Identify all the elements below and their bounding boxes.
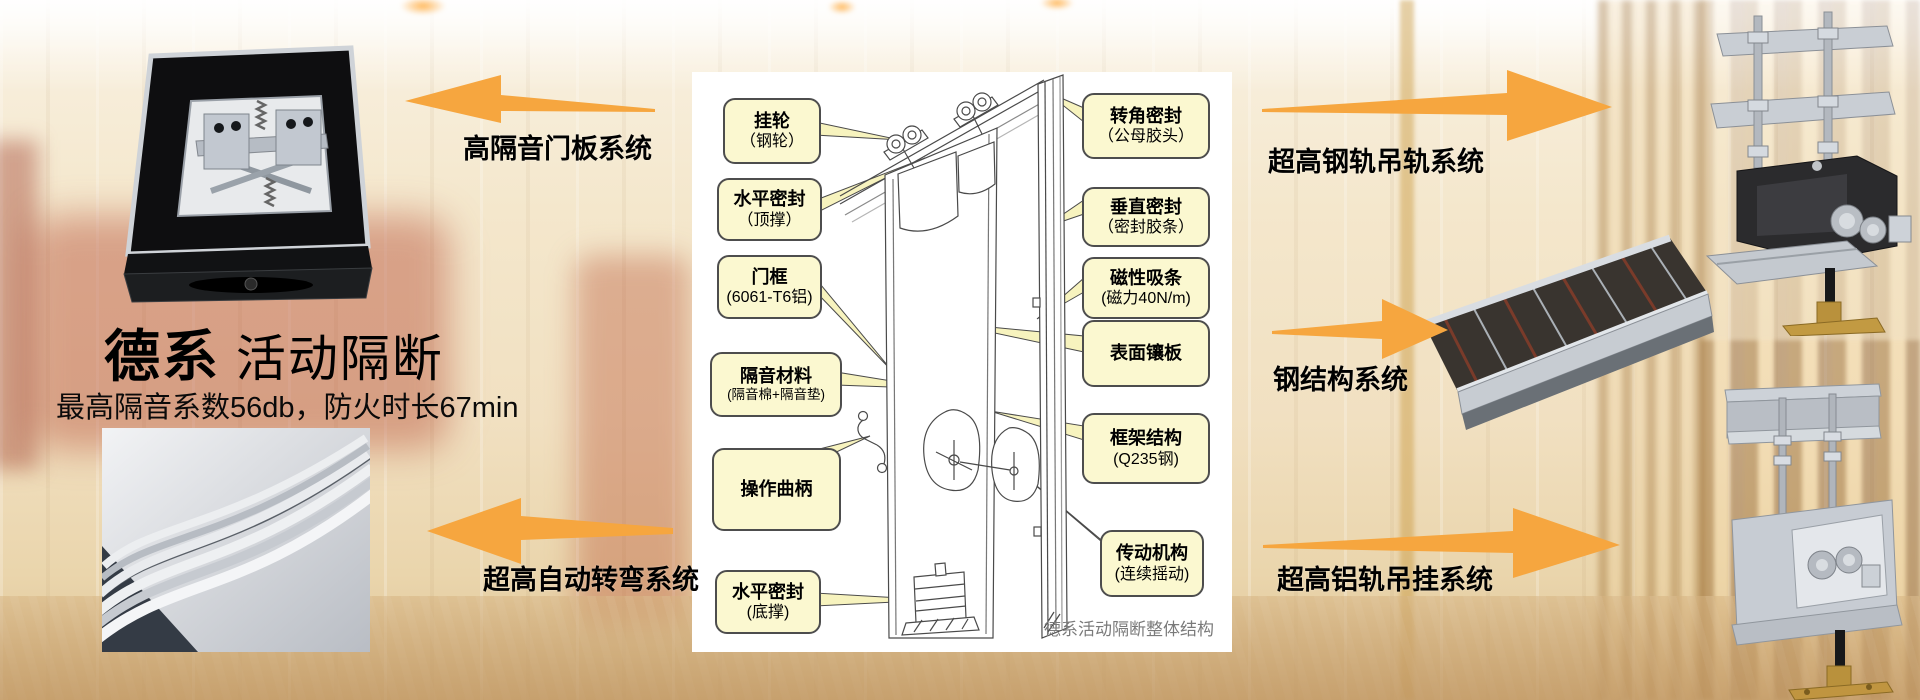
diagram-caption: 德系活动隔断整体结构 [1028, 615, 1230, 640]
left-arrow-icon [403, 73, 655, 125]
ceiling-light [828, 0, 856, 14]
callout-line: 垂直密封 [1110, 196, 1182, 219]
system-label-door-panel: 高隔音门板系统 [463, 127, 652, 166]
callout-line: 门框 [752, 266, 788, 289]
system-label-steel-structure: 钢结构系统 [1273, 358, 1408, 397]
callout-line: 隔音材料 [740, 365, 812, 388]
red-panel-blur [0, 140, 38, 470]
right-arrow-icon [1272, 297, 1450, 360]
callout-line: (隔音棉+隔音垫) [727, 387, 825, 404]
product-specs: 最高隔音系数56db，防火时长67min [56, 384, 519, 426]
callout-line: (磁力40N/m) [1101, 289, 1191, 309]
callout-operating-crank: 操作曲柄 [712, 448, 841, 531]
callout-line: 挂轮 [754, 110, 790, 133]
callout-hanging-wheel: 挂轮 （钢轮） [723, 98, 821, 164]
callout-line: （顶撑） [737, 211, 801, 231]
callout-line: （公母胶头） [1098, 127, 1194, 147]
callout-line: 表面镶板 [1110, 342, 1182, 365]
callout-door-frame: 门框 (6061-T6铝) [717, 255, 822, 319]
partition-drawing [840, 75, 1067, 638]
door-panel-mechanism-photo [116, 6, 390, 306]
product-title-bold: 德系 [104, 325, 220, 388]
callout-line: (6061-T6铝) [726, 288, 812, 308]
callout-line: 传动机构 [1116, 542, 1188, 565]
aluminum-rail-hanger-art [1697, 380, 1919, 700]
callout-horizontal-seal-top: 水平密封 （顶撑） [717, 178, 822, 241]
callout-line: （钢轮） [740, 132, 804, 152]
left-arrow-icon [425, 496, 673, 566]
aluminum-rail-hanger-photo [1697, 380, 1919, 700]
system-label-aluminum-rail: 超高铝轨吊挂系统 [1277, 558, 1493, 597]
partition-marketing-banner: 高隔音门板系统 超高自动转弯系统 超高钢轨吊轨系统 钢结构系统 超高铝轨吊挂系统… [0, 0, 1920, 700]
callout-magnetic-strip: 磁性吸条 (磁力40N/m) [1082, 257, 1210, 319]
callout-line: 操作曲柄 [741, 478, 813, 501]
callout-line: （密封胶条） [1098, 218, 1194, 238]
product-title-regular: 活动隔断 [220, 331, 444, 387]
system-label-auto-turning: 超高自动转弯系统 [483, 558, 699, 597]
steel-structure-photo [1418, 232, 1718, 460]
curved-track-art [102, 428, 370, 652]
callout-line: 框架结构 [1110, 427, 1182, 450]
callout-line: 磁性吸条 [1110, 267, 1182, 290]
callout-horizontal-seal-bottom: 水平密封 (底撑) [715, 570, 821, 634]
callout-surface-panel: 表面镶板 [1082, 320, 1210, 387]
callout-line: (Q235钢) [1113, 450, 1179, 470]
steel-structure-art [1418, 232, 1718, 460]
callout-line: (连续摇动) [1115, 565, 1190, 585]
callout-transmission: 传动机构 (连续摇动) [1100, 530, 1204, 597]
callout-line: (底撑) [747, 603, 790, 623]
callout-line: 转角密封 [1110, 105, 1182, 128]
right-arrow-icon [1262, 67, 1615, 143]
callout-line: 水平密封 [734, 188, 806, 211]
callout-corner-seal: 转角密封 （公母胶头） [1082, 93, 1210, 159]
callout-sound-insulation: 隔音材料 (隔音棉+隔音垫) [710, 352, 842, 417]
callout-line: 水平密封 [732, 581, 804, 604]
steel-rail-hanger-photo [1697, 6, 1919, 336]
page-title: 德系 活动隔断 [104, 312, 444, 393]
callout-frame-structure: 框架结构 (Q235钢) [1082, 413, 1210, 484]
curved-track-photo [102, 428, 370, 652]
door-panel-mechanism-art [116, 6, 390, 306]
structure-diagram: 挂轮 （钢轮） 水平密封 （顶撑） 门框 (6061-T6铝) 隔音材料 (隔音… [692, 72, 1232, 652]
system-label-steel-rail: 超高钢轨吊轨系统 [1268, 140, 1484, 179]
steel-rail-hanger-art [1697, 6, 1919, 336]
callout-vertical-seal: 垂直密封 （密封胶条） [1082, 187, 1210, 247]
